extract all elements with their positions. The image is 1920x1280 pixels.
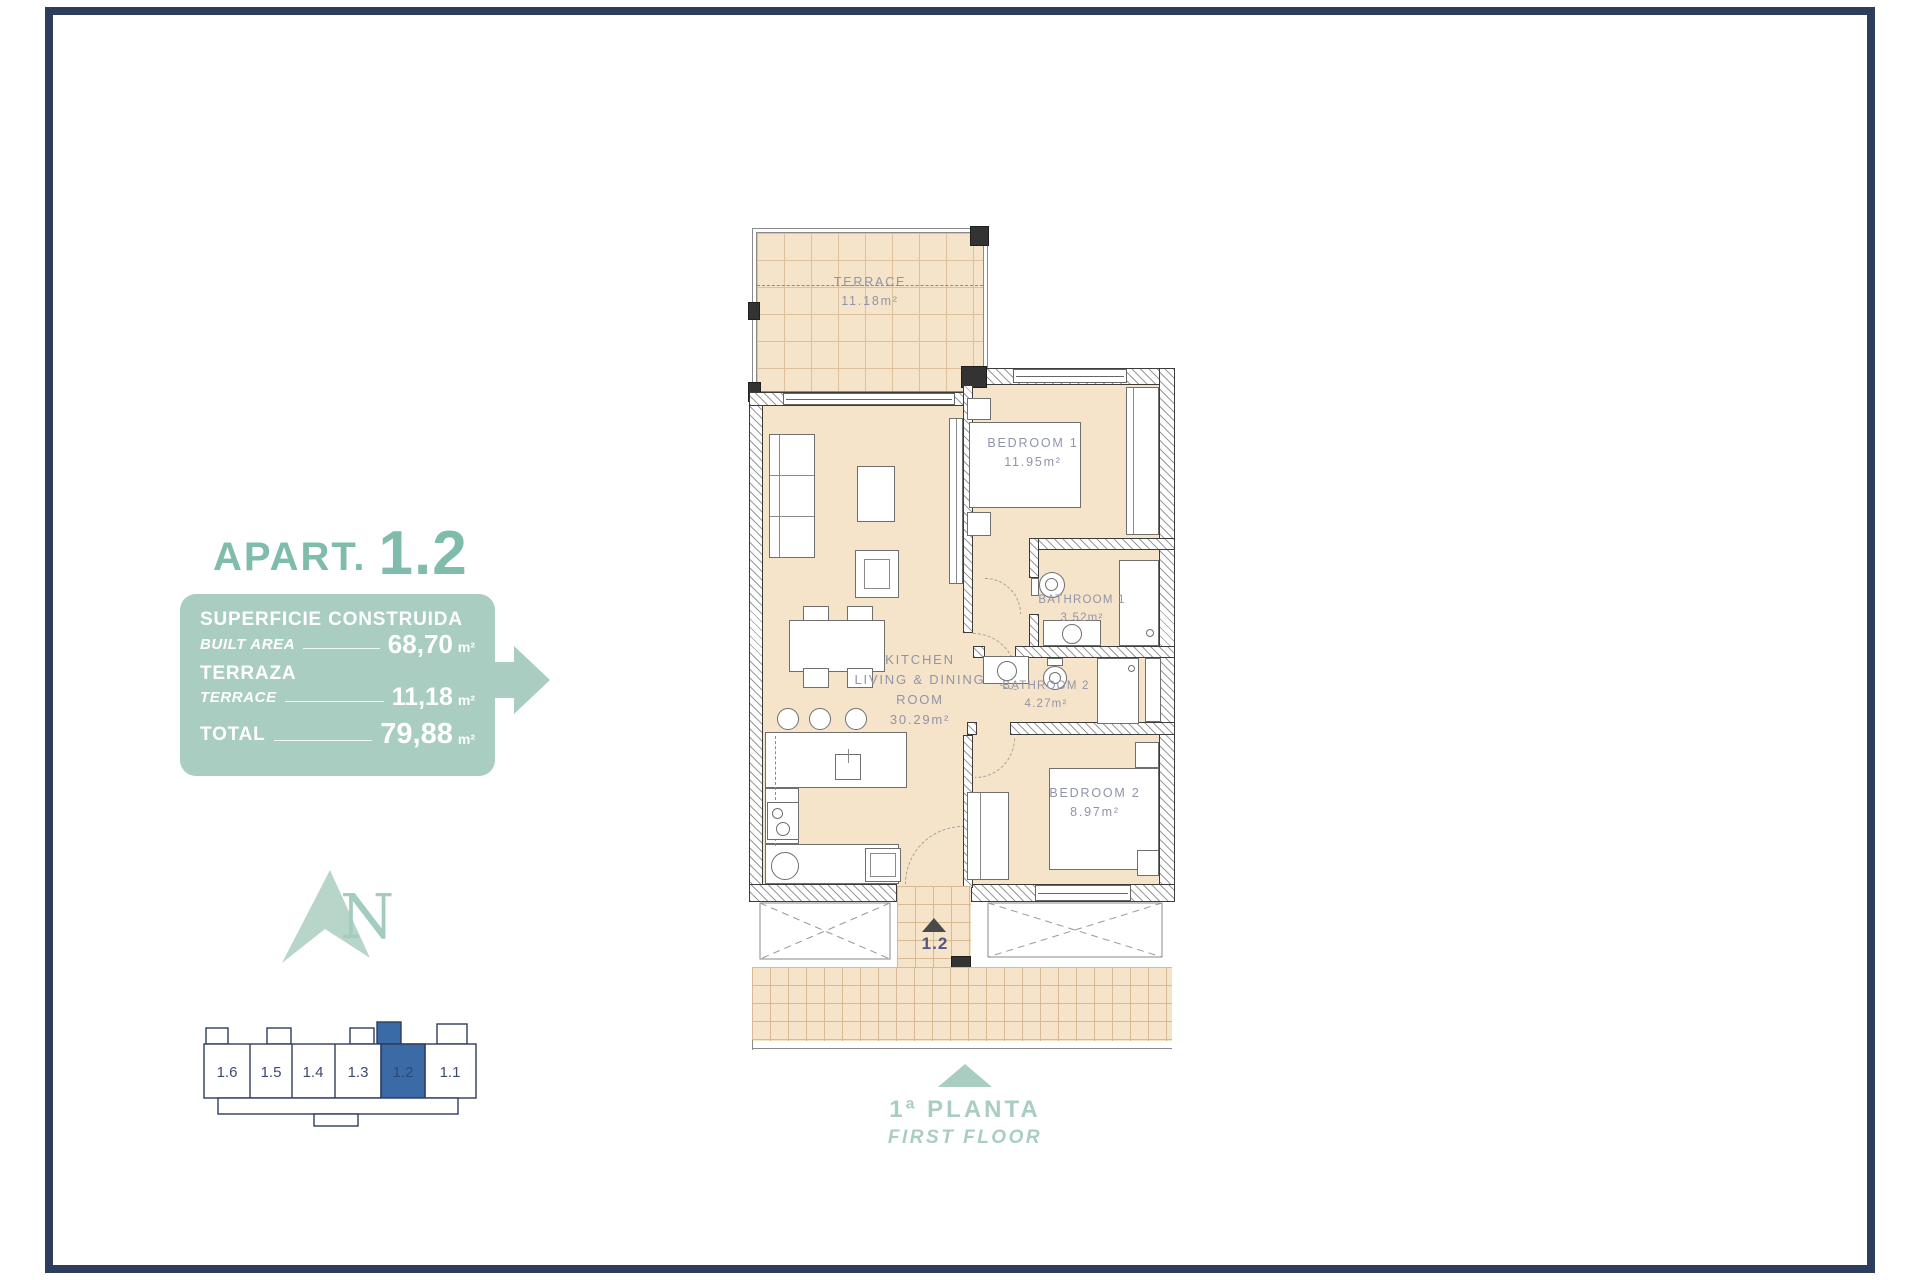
bathroom-cabinet [1145, 658, 1161, 722]
locator-building-outline [204, 1044, 476, 1098]
side-table [855, 550, 899, 598]
area-summary-box: SUPERFICIE CONSTRUIDA BUILT AREA 68,70 m… [180, 594, 495, 776]
wall [1029, 538, 1175, 550]
total-label: TOTAL [200, 724, 266, 749]
nightstand [967, 512, 991, 536]
terrace-area: 11.18m² [757, 292, 983, 311]
bar-stool [809, 708, 831, 730]
floor-plan: TERRACE 11.18m² [745, 222, 1190, 1057]
window [1035, 885, 1131, 901]
locator-unit-1-6: 1.6 [217, 1064, 238, 1081]
locator-highlight-tab [377, 1022, 401, 1044]
bedroom1-area: 11.95m² [978, 453, 1088, 472]
wardrobe [967, 792, 1009, 880]
arrow-right-icon [490, 662, 514, 698]
terrace-label-es: TERRAZA [200, 663, 475, 685]
terrace-label-en: TERRACE [200, 689, 277, 710]
dining-chair [803, 668, 829, 688]
entrance-arrow-icon [922, 918, 946, 932]
terrace-area-unit: m² [453, 692, 475, 710]
floor-label-es: 1ª PLANTA [845, 1096, 1085, 1124]
bedroom2-area: 8.97m² [1040, 803, 1150, 822]
terrace-floor: TERRACE 11.18m² [756, 232, 984, 392]
built-area-label-es: SUPERFICIE CONSTRUIDA [200, 609, 475, 631]
compass-letter: N [340, 880, 394, 953]
wall [1029, 538, 1039, 578]
window [783, 393, 955, 405]
locator-top-tab [267, 1028, 291, 1044]
bathroom1-name: BATHROOM 1 [1027, 592, 1137, 610]
up-arrow-icon [938, 1064, 992, 1087]
locator-top-tab [437, 1024, 467, 1044]
cooktop [835, 754, 861, 780]
kitchen-area: 30.29m² [853, 710, 987, 730]
toilet [1047, 658, 1063, 666]
tv-unit [949, 418, 963, 584]
page: APART. 1.2 SUPERFICIE CONSTRUIDA BUILT A… [0, 0, 1920, 1280]
floor-label-en: FIRST FLOOR [845, 1127, 1085, 1149]
apartment-title-number: 1.2 [378, 528, 467, 581]
bathroom2-name: BATHROOM 2 [991, 678, 1101, 696]
kitchen-name-line1: KITCHEN [853, 650, 987, 670]
pillar [970, 226, 989, 246]
wall [749, 392, 763, 892]
built-area-label-en: BUILT AREA [200, 636, 295, 657]
terrace-label: TERRACE 11.18m² [757, 273, 983, 312]
shower [1097, 658, 1139, 724]
arrow-right-icon [514, 646, 550, 714]
locator-unit-1-3: 1.3 [348, 1064, 369, 1081]
washing-machine [771, 852, 799, 880]
built-area-row: BUILT AREA 68,70 m² [200, 631, 475, 657]
fridge [865, 848, 901, 882]
terrace-name: TERRACE [757, 273, 983, 292]
locator-top-tab [350, 1028, 374, 1044]
bedroom2-label: BEDROOM 2 8.97m² [1040, 784, 1150, 823]
building-locator: 1.6 1.5 1.4 1.3 1.2 1.1 [196, 1020, 486, 1132]
wall [1010, 722, 1175, 735]
bedroom2-name: BEDROOM 2 [1040, 784, 1150, 803]
locator-walkway [218, 1098, 458, 1114]
leader-line [303, 648, 380, 649]
walkway-tiles [752, 967, 1172, 1041]
bathroom2-label: BATHROOM 2 4.27m² [991, 678, 1101, 714]
locator-unit-1-2-highlighted: 1.2 [393, 1064, 414, 1081]
bedroom1-name: BEDROOM 1 [978, 434, 1088, 453]
kitchen-name-line3: ROOM [853, 690, 987, 710]
total-area-row: TOTAL 79,88 m² [200, 720, 475, 749]
wall [749, 884, 897, 902]
north-arrow-icon: N [278, 866, 410, 981]
window [1013, 369, 1127, 383]
kitchen-label: KITCHEN LIVING & DINING ROOM 30.29m² [853, 650, 987, 731]
wall [1159, 368, 1175, 892]
sofa [769, 434, 815, 558]
built-area-unit: m² [453, 639, 475, 657]
ground-line [752, 1048, 1172, 1049]
pillar [748, 302, 760, 320]
nightstand [967, 398, 991, 420]
bathroom1-label: BATHROOM 1 3.52m² [1027, 592, 1137, 628]
leader-line [274, 740, 373, 741]
locator-unit-1-5: 1.5 [261, 1064, 282, 1081]
total-area-value: 79,88 [380, 720, 453, 749]
wardrobe [1126, 387, 1159, 535]
void-area [987, 902, 1163, 958]
floor-level-label: 1ª PLANTA FIRST FLOOR [845, 1064, 1085, 1149]
leader-line [285, 701, 384, 702]
terrace-area-value: 11,18 [392, 685, 453, 710]
ground-line-tick [752, 1040, 753, 1050]
locator-bottom-tab [314, 1114, 358, 1126]
kitchen-name-line2: LIVING & DINING [853, 670, 987, 690]
nightstand [1137, 850, 1159, 876]
wall [1015, 646, 1175, 658]
void-area [759, 902, 891, 960]
apartment-title-prefix: APART. [213, 537, 366, 581]
terrace-railing: TERRACE 11.18m² [752, 228, 988, 396]
locator-unit-1-4: 1.4 [303, 1064, 324, 1081]
terrace-area-row: TERRACE 11,18 m² [200, 685, 475, 710]
bathroom1-area: 3.52m² [1027, 610, 1137, 628]
locator-unit-1-1: 1.1 [440, 1064, 461, 1081]
nightstand [1135, 742, 1159, 768]
bedroom1-label: BEDROOM 1 11.95m² [978, 434, 1088, 473]
apartment-title: APART. 1.2 [213, 528, 468, 581]
bar-stool [777, 708, 799, 730]
built-area-value: 68,70 [388, 631, 453, 657]
locator-top-tab [206, 1028, 228, 1044]
coffee-table [857, 466, 895, 522]
kitchen-sink [767, 802, 799, 840]
bathroom2-area: 4.27m² [991, 696, 1101, 714]
entrance-unit-label: 1.2 [911, 934, 959, 954]
total-area-unit: m² [453, 731, 475, 749]
